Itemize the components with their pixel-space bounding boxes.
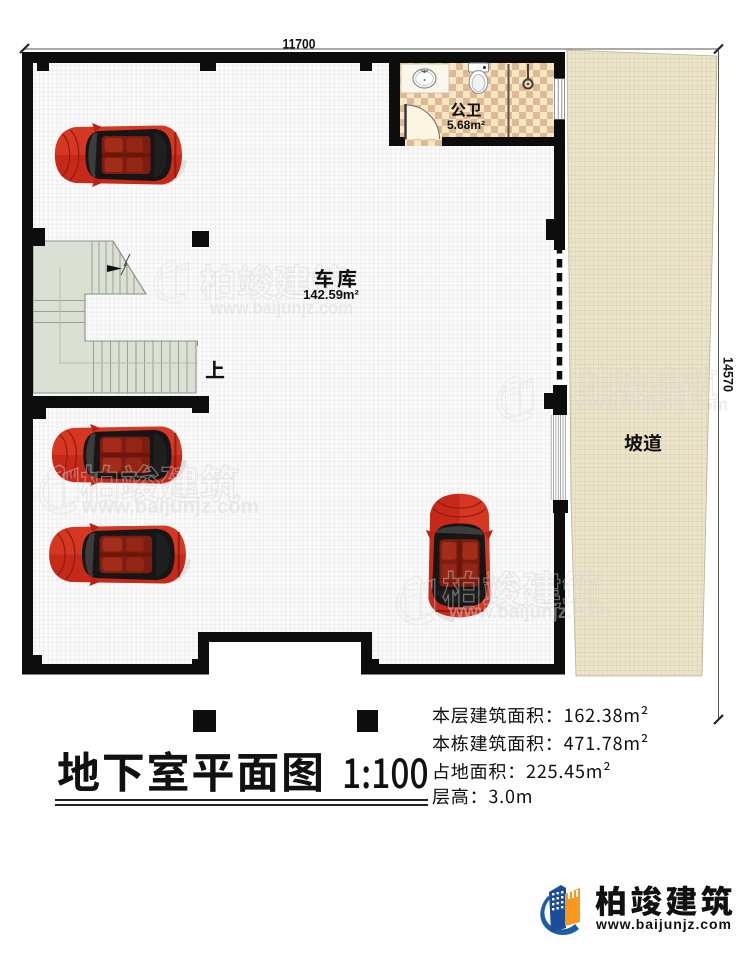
svg-text:www.baijunjz.com: www.baijunjz.com bbox=[448, 601, 611, 623]
svg-text:5.68m²: 5.68m² bbox=[447, 118, 485, 132]
svg-text:www.baijunjz.com: www.baijunjz.com bbox=[81, 496, 259, 518]
svg-text:142.59m²: 142.59m² bbox=[303, 287, 359, 302]
svg-text:www.baijunjz.com: www.baijunjz.com bbox=[575, 395, 728, 416]
svg-text:14570: 14570 bbox=[721, 357, 736, 392]
svg-text:11700: 11700 bbox=[283, 37, 316, 52]
svg-text:www.baijunjz.com: www.baijunjz.com bbox=[595, 916, 731, 932]
